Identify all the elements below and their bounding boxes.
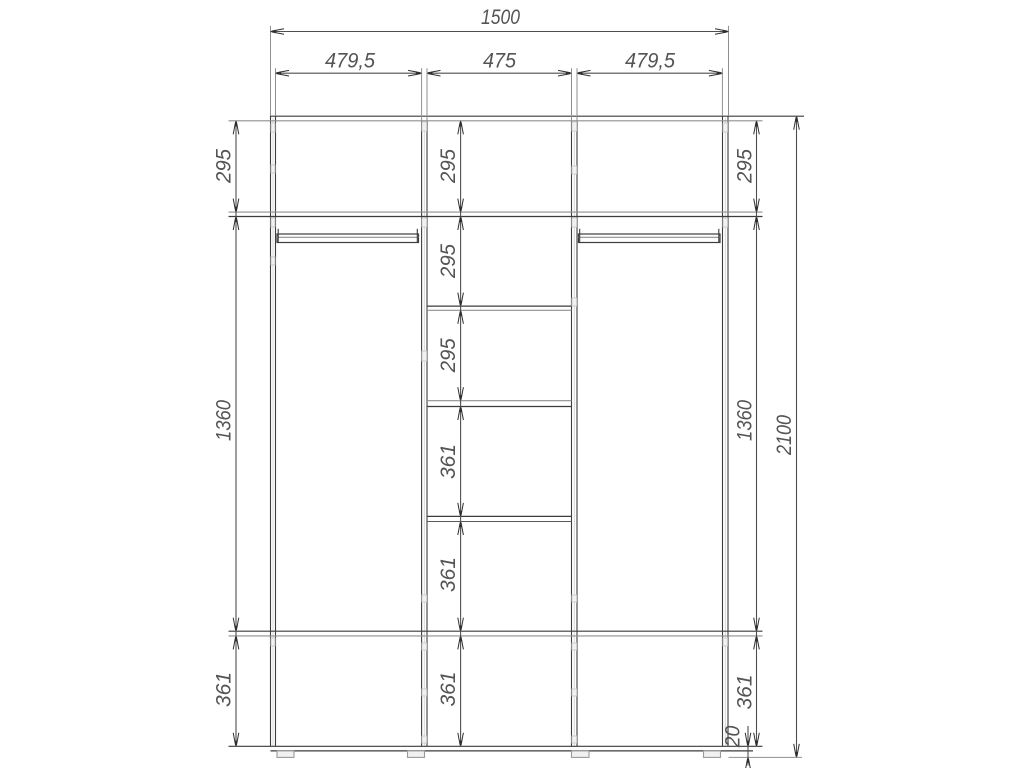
svg-text:1500: 1500 — [481, 6, 520, 29]
svg-text:361: 361 — [437, 557, 460, 592]
svg-text:295: 295 — [734, 149, 757, 184]
svg-text:295: 295 — [213, 149, 236, 184]
svg-text:475: 475 — [483, 50, 516, 73]
svg-text:20: 20 — [722, 725, 745, 748]
svg-text:295: 295 — [437, 244, 460, 279]
svg-text:1360: 1360 — [734, 400, 757, 441]
svg-text:361: 361 — [213, 672, 236, 707]
svg-text:2100: 2100 — [773, 415, 796, 456]
svg-text:361: 361 — [734, 675, 757, 710]
svg-text:479,5: 479,5 — [625, 50, 675, 73]
svg-text:295: 295 — [437, 338, 460, 373]
svg-text:361: 361 — [437, 672, 460, 707]
svg-text:295: 295 — [437, 149, 460, 184]
svg-text:479,5: 479,5 — [325, 50, 375, 73]
svg-text:361: 361 — [437, 444, 460, 479]
svg-text:1360: 1360 — [213, 400, 236, 441]
